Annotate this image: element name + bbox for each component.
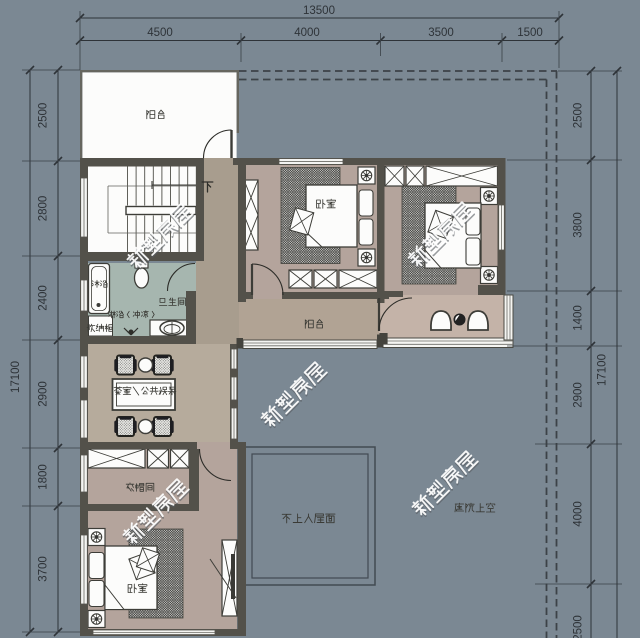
svg-text:1400: 1400 xyxy=(573,305,585,331)
svg-text:2500: 2500 xyxy=(573,615,585,638)
svg-text:2900: 2900 xyxy=(573,382,585,408)
svg-text:3500: 3500 xyxy=(428,27,454,39)
svg-text:4500: 4500 xyxy=(147,27,173,39)
svg-text:1800: 1800 xyxy=(38,464,50,490)
svg-text:13500: 13500 xyxy=(303,5,335,17)
svg-text:3700: 3700 xyxy=(38,556,50,582)
svg-text:4000: 4000 xyxy=(573,501,585,527)
svg-text:2400: 2400 xyxy=(38,285,50,311)
svg-text:4000: 4000 xyxy=(294,27,320,39)
svg-text:2500: 2500 xyxy=(573,103,585,129)
svg-text:1500: 1500 xyxy=(517,27,543,39)
svg-text:2500: 2500 xyxy=(38,103,50,129)
svg-text:17100: 17100 xyxy=(10,361,22,393)
svg-text:2800: 2800 xyxy=(38,196,50,222)
svg-text:3800: 3800 xyxy=(573,212,585,238)
svg-text:2900: 2900 xyxy=(38,381,50,407)
svg-text:17100: 17100 xyxy=(597,354,609,386)
